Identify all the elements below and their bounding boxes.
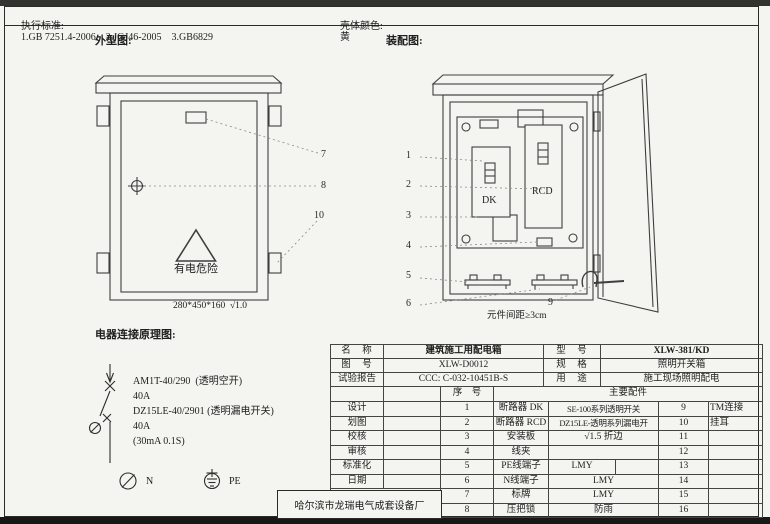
dk-breaker xyxy=(472,147,510,217)
panel-hole xyxy=(569,234,577,242)
hinge-tab xyxy=(97,253,109,273)
panel-cutout xyxy=(480,120,498,128)
use-label: 用 途 xyxy=(544,373,601,387)
item-no2: 13 xyxy=(659,460,709,475)
spacing-note: 元件间距≥3cm xyxy=(487,311,547,321)
schematic-line-5: (30mA 0.1S) xyxy=(133,436,185,447)
spec-value: 照明开关箱 xyxy=(601,359,763,373)
pe-label: PE xyxy=(229,476,241,487)
drawing-no-value: XLW-D0012 xyxy=(384,359,544,373)
callout-2: 2 xyxy=(406,179,411,190)
signature-cell xyxy=(384,445,441,460)
item-no2: 10 xyxy=(659,416,709,431)
schematic-line-2: 40A xyxy=(133,391,150,402)
signoff-design: 设计 xyxy=(331,402,384,417)
table-row: 审核 4 线夹 12 xyxy=(331,445,763,460)
dk-breaker-label: DK xyxy=(482,195,496,206)
item-spec2 xyxy=(709,460,763,475)
signoff-review: 审核 xyxy=(331,445,384,460)
ground-symbol xyxy=(205,469,220,489)
neutral-symbol xyxy=(120,473,136,489)
open-door xyxy=(598,74,658,312)
callout-5: 5 xyxy=(406,270,411,281)
panel-hole xyxy=(570,123,578,131)
item-no2: 14 xyxy=(659,474,709,489)
lock-icon xyxy=(128,177,146,195)
model-value: XLW-381/KD xyxy=(601,345,763,359)
schematic-line-3: DZ15LE-40/2901 (透明漏电开关) xyxy=(133,406,274,417)
wire-duct xyxy=(493,215,517,241)
signoff-draft: 划图 xyxy=(331,416,384,431)
signoff-standardize: 标准化 xyxy=(331,460,384,475)
item-name: 压把锁 xyxy=(494,503,549,518)
item-spec2 xyxy=(709,445,763,460)
table-row: 日期 6 N线端子 LMY 14 xyxy=(331,474,763,489)
door-hinge xyxy=(594,255,600,272)
table-row: 设计 1 断路器 DK SE-100系列透明开关 9 TM连接 xyxy=(331,402,763,417)
item-spec2 xyxy=(709,431,763,446)
table-row: 校核 3 安装板 √1.5 折边 11 xyxy=(331,431,763,446)
item-name: 线夹 xyxy=(494,445,549,460)
item-spec: SE-100系列透明开关 xyxy=(549,402,659,417)
wire-duct xyxy=(518,110,543,127)
empty-cell xyxy=(616,460,659,475)
item-no: 1 xyxy=(441,402,494,417)
item-no2: 12 xyxy=(659,445,709,460)
callout-9: 9 xyxy=(548,297,553,308)
nameplate-window xyxy=(186,112,206,123)
item-spec xyxy=(549,445,659,460)
item-no: 3 xyxy=(441,431,494,446)
box-lid xyxy=(433,84,603,95)
title-block-top: 名 称 建筑施工用配电箱 型 号 XLW-381/KD 图 号 XLW-D001… xyxy=(330,344,763,387)
item-no: 8 xyxy=(441,503,494,518)
item-name: 安装板 xyxy=(494,431,549,446)
item-no2: 15 xyxy=(659,489,709,504)
neutral-label: N xyxy=(146,476,153,487)
report-label: 试验报告 xyxy=(331,373,384,387)
item-spec: 防雨 xyxy=(549,503,659,518)
item-name: 断路器 RCD xyxy=(494,416,549,431)
panel-cutout xyxy=(537,238,552,246)
drawing-no-label: 图 号 xyxy=(331,359,384,373)
table-row: 划图 2 断路器 RCD DZ15LE-透明系列漏电开 10 挂耳 xyxy=(331,416,763,431)
box-opening xyxy=(450,102,587,294)
item-spec2 xyxy=(709,503,763,518)
use-value: 施工现场照明配电 xyxy=(601,373,763,387)
item-spec2: TM连接 xyxy=(709,402,763,417)
warning-triangle-icon xyxy=(177,230,216,261)
box-lid-top xyxy=(433,75,613,84)
item-no: 6 xyxy=(441,474,494,489)
callout-10: 10 xyxy=(314,210,324,221)
callout-8: 8 xyxy=(321,180,326,191)
schematic-line-4: 40A xyxy=(133,421,150,432)
item-no2: 9 xyxy=(659,402,709,417)
rcd-breaker-label: RCD xyxy=(532,186,553,197)
leader-lines xyxy=(144,119,321,263)
hinge-tab xyxy=(97,106,109,126)
empty-cell xyxy=(331,387,384,402)
table-row: 标准化 5 PE线端子 LMY 13 xyxy=(331,460,763,475)
schematic-line-1: AM1T-40/290 (透明空开) xyxy=(133,376,242,387)
item-no: 4 xyxy=(441,445,494,460)
signoff-date: 日期 xyxy=(331,474,384,489)
item-spec: LMY xyxy=(549,474,659,489)
drawing-sheet: 执行标准: 1.GB 7251.4-2006 2.JGJ46-2005 3.GB… xyxy=(0,0,770,524)
item-spec2 xyxy=(709,489,763,504)
hinge-tab xyxy=(269,253,281,273)
box-lid-top xyxy=(96,76,281,83)
name-value: 建筑施工用配电箱 xyxy=(384,345,544,359)
item-no: 5 xyxy=(441,460,494,475)
item-no2: 11 xyxy=(659,431,709,446)
signoff-check: 校核 xyxy=(331,431,384,446)
item-name: PE线端子 xyxy=(494,460,549,475)
item-spec: LMY xyxy=(549,489,659,504)
earth-wire-loop xyxy=(582,272,597,287)
callout-6: 6 xyxy=(406,298,411,309)
signature-cell xyxy=(384,402,441,417)
serial-header: 序 号 xyxy=(441,387,494,402)
hinge-tab xyxy=(269,106,281,126)
signature-cell xyxy=(384,460,441,475)
rcd-breaker xyxy=(525,125,562,228)
signature-cell xyxy=(384,474,441,489)
company-name-box: 哈尔滨市龙瑞电气成套设备厂 xyxy=(277,490,442,519)
callout-4: 4 xyxy=(406,240,411,251)
name-label: 名 称 xyxy=(331,345,384,359)
breaker-symbol xyxy=(90,364,116,463)
callout-7: 7 xyxy=(321,149,326,160)
item-spec2 xyxy=(709,474,763,489)
terminal-strip-pe xyxy=(465,275,510,289)
item-name: 断路器 DK xyxy=(494,402,549,417)
item-no: 2 xyxy=(441,416,494,431)
spec-label: 规 格 xyxy=(544,359,601,373)
item-name: N线端子 xyxy=(494,474,549,489)
callout-1: 1 xyxy=(406,150,411,161)
panel-hole xyxy=(462,235,470,243)
model-label: 型 号 xyxy=(544,345,601,359)
item-spec: LMY xyxy=(549,460,616,475)
item-spec: DZ15LE-透明系列漏电开 xyxy=(549,416,659,431)
item-no: 7 xyxy=(441,489,494,504)
empty-cell xyxy=(384,387,441,402)
parts-header: 主要配件 xyxy=(494,387,763,402)
company-name: 哈尔滨市龙瑞电气成套设备厂 xyxy=(295,497,425,512)
panel-hole xyxy=(462,123,470,131)
item-no2: 16 xyxy=(659,503,709,518)
signature-cell xyxy=(384,416,441,431)
dimension-text: 280*450*160 √1.0 xyxy=(158,301,262,311)
door-hinge xyxy=(594,112,600,131)
callout-3: 3 xyxy=(406,210,411,221)
report-value: CCC: C-032-10451B-S xyxy=(384,373,544,387)
box-lid xyxy=(96,83,281,93)
terminal-strip-n xyxy=(532,275,577,289)
warning-text: 有电危险 xyxy=(166,263,226,275)
signature-cell xyxy=(384,431,441,446)
item-spec: √1.5 折边 xyxy=(549,431,659,446)
item-spec2: 挂耳 xyxy=(709,416,763,431)
item-name: 标牌 xyxy=(494,489,549,504)
